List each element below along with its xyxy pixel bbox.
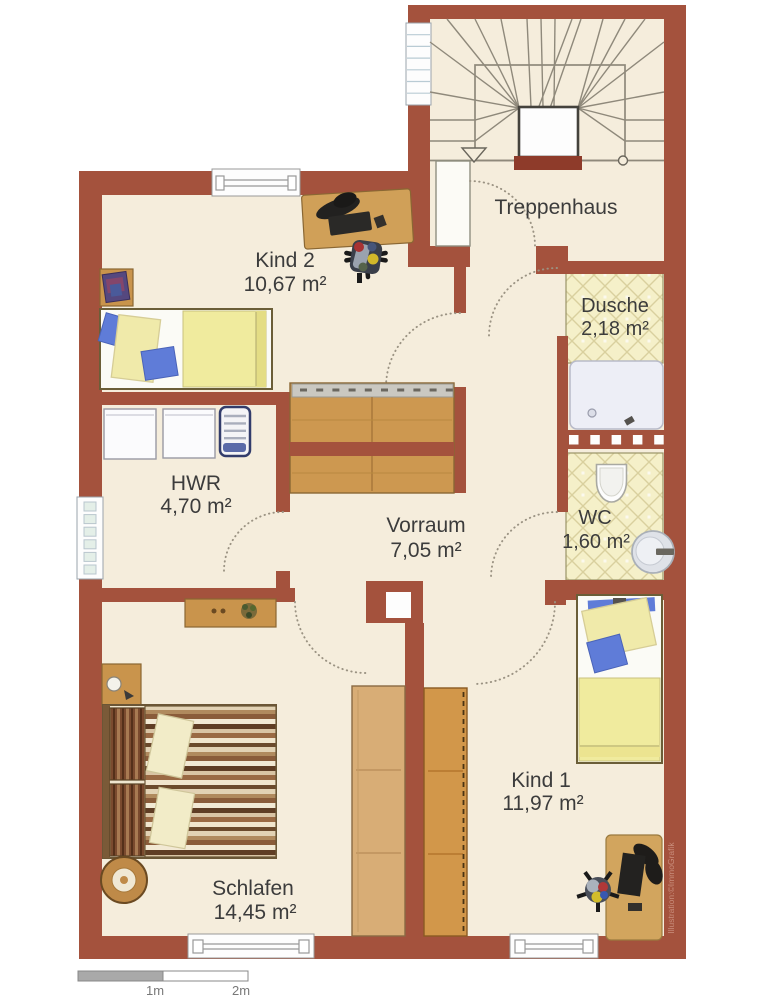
svg-text:HWR: HWR: [171, 472, 221, 495]
svg-text:1,60 m²: 1,60 m²: [562, 531, 630, 553]
svg-text:Schlafen: Schlafen: [212, 877, 294, 900]
svg-text:2,18 m²: 2,18 m²: [581, 318, 649, 340]
svg-text:Illustration:©ImmoGrafik: Illustration:©ImmoGrafik: [666, 842, 676, 934]
svg-text:WC: WC: [578, 507, 611, 529]
svg-text:7,05 m²: 7,05 m²: [390, 539, 461, 562]
svg-text:10,67 m²: 10,67 m²: [244, 273, 327, 296]
svg-text:4,70 m²: 4,70 m²: [160, 495, 231, 518]
svg-text:Kind 2: Kind 2: [255, 249, 315, 272]
svg-text:14,45 m²: 14,45 m²: [214, 901, 297, 924]
svg-text:11,97 m²: 11,97 m²: [502, 792, 583, 815]
svg-text:Dusche: Dusche: [581, 295, 649, 317]
svg-text:1m: 1m: [146, 983, 164, 998]
svg-text:Vorraum: Vorraum: [386, 514, 465, 537]
svg-text:Kind 1: Kind 1: [511, 769, 571, 792]
svg-text:2m: 2m: [232, 983, 250, 998]
svg-text:Treppenhaus: Treppenhaus: [495, 196, 618, 219]
